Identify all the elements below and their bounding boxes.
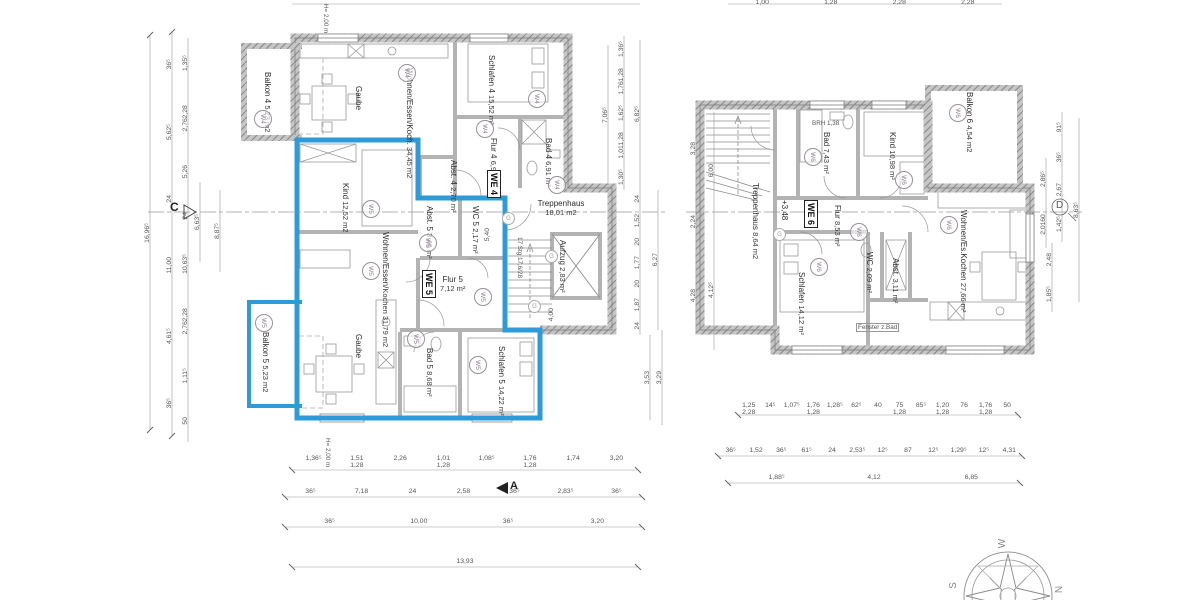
compass-rose-icon [964,552,1052,600]
dim-value: 1,28 [797,0,866,6]
unit-badge-w5: W5 [407,330,425,348]
dim-value: 6,82⁵ [634,106,641,122]
dim-value: 36⁵ [464,518,553,525]
dim-value: 3,29 [656,371,663,384]
dim-col-rp-right-c: 8,63⁵ [1073,118,1080,302]
g-circle: G [773,228,786,241]
unit-badge-w5: W5 [469,356,487,374]
dim-value: 2,762,28 [182,105,189,131]
dim-value: 3,20 [595,455,638,469]
room-label-abst-6: Abst. 3,11 m² [890,258,899,303]
dim-value: 6,27 [652,253,659,266]
unit-badge-w6: W6 [810,258,828,276]
dim-value: 87 [895,447,920,454]
dim-value: 1,42⁵ [1056,216,1063,232]
dim-col-left-short1: 6,63⁵ [194,182,201,262]
dim-value: 3,28 [690,142,697,155]
dim-col-left-mid: 36⁵5,62⁵2411,004,61⁵36⁵ [166,32,173,436]
unit-box-we5: WE 5 [422,270,436,298]
dim-col-rp-right-b: 2,86⁵2,0160 [1040,158,1047,248]
dim-value: 36⁵ [285,518,374,525]
dim-value: 5,26 [182,165,189,178]
dim-value: 36⁵ [1056,152,1063,162]
room-label-balkon-6: Balkon 6 4,54 m2 [964,92,973,152]
room-label-flur-6: Flur 8,53 m² [832,205,841,246]
dim-value: 1,35⁵ [182,55,189,71]
dim-col-rp-right-d: 2,481,85⁵ [1046,243,1053,312]
unit-badge-w6: W6 [949,104,967,122]
dim-value: 61⁵ [794,447,819,454]
room-label-bad-6: Bad 7,43 m² [821,132,830,174]
dim-value: 85⁵ [910,402,932,416]
dim-value: 16,96⁵ [144,223,151,243]
g-circle: G [545,250,558,263]
room-label-abst-4: Abst. 4 2,70 m² [448,160,457,213]
room-label-treppenhaus-right: Treppenhaus 8,64 m2 [750,183,759,259]
dim-value: 1,74 [552,455,595,469]
dim-value: 24 [634,195,641,203]
dim-value: 24 [182,212,189,220]
level-marker: +3,48 [779,200,788,220]
dim-value: 2,53⁵ [845,447,870,454]
dim-value: 5,62⁵ [166,124,173,140]
dim-row-left-bottom-3: 36⁵10,0036⁵3,20 [285,518,642,525]
dim-value: 1,761,28 [975,402,997,416]
dim-value: 1,62⁵ [618,105,625,121]
compass-s-label: S [948,582,959,589]
room-label-schlafen-4: Schlafen 4 15,52 m² [486,55,495,125]
dim-value: 2,86⁵ [1040,171,1047,187]
dim-value: 1,29⁵ [946,447,971,454]
fenster-note: Fenster z.Bad [856,323,899,332]
dim-value: 1,87 [634,298,641,311]
dim-col-left-outer: 16,96⁵ [144,35,151,430]
dim-value: 4,28 [690,289,697,302]
dim-row-left-bottom-1: 1,36⁵1,511,282,261,011,281,08⁵1,761,281,… [292,455,638,469]
dim-value: 1,36⁵ [292,455,335,469]
dim-value: 10,63⁵ [182,254,189,274]
dim-value: 4,12⁵ [708,282,715,298]
unit-badge-w6: W6 [850,223,868,241]
unit-badge-w5: W5 [419,234,437,252]
dim-value: 12⁵ [870,447,895,454]
dim-value: 1,761,28 [803,402,825,416]
unit-badge-w5: W5 [474,288,492,306]
dim-value: 8,87⁵ [214,223,221,239]
dim-value: 1,011,28 [618,132,625,158]
dim-value: 1,77 [634,256,641,269]
dim-col-left-short2: 8,87⁵ [214,190,221,272]
dim-value: 1,00 [728,0,797,6]
room-label-wohnen-5: Wohnen/Essen/Kochen 31,79 m2 [380,232,389,347]
dim-value: 36⁵ [769,447,794,454]
dim-value: 6,85 [923,474,1020,481]
dim-value: 11,00 [166,257,173,274]
dim-col-lp-right-bot: 3,53 [644,335,651,420]
dim-value: 12⁵ [971,447,996,454]
room-label-schlafen-5: Schlafen 5 14,22 m² [496,346,505,416]
dim-value: 24 [387,488,438,495]
dim-value: 4,61⁵ [166,328,173,344]
floorplan-sheet: { "accent": {"blue": "#2e9ad8", "wall_gr… [0,0,1200,600]
dim-value: 7,18 [336,488,387,495]
dim-value: 50 [996,402,1018,416]
dim-col-left-inner: 1,35⁵2,762,285,262410,63⁵2,762,281,11⁵50 [182,38,189,442]
unit-badge-w4: W4 [476,120,494,138]
unit-badge-w6: W6 [895,171,913,189]
room-label-aufzug: Aufzug 2,83 m² [557,240,566,293]
dim-value: 13,93 [292,558,638,565]
dim-row-right-bottom-3: 1,88⁵4,126,85 [728,474,1020,481]
dim-value: 24 [166,195,173,203]
g-circle: G [528,300,541,313]
dim-value: 2,83⁵ [540,488,591,495]
dim-value: 1,28⁵ [824,402,846,416]
dim-value: 8,63⁵ [1073,202,1080,218]
dim-value: 1,201,28 [932,402,954,416]
room-label-bad-5: Bad 5 8,68 m² [424,348,433,397]
unit-badge-w6: W6 [804,148,822,166]
dim-value: 36⁵ [285,488,336,495]
dim-value: 3,53 [644,371,651,384]
dim-value: 6,63⁵ [194,214,201,230]
dim-value: 36⁵ [718,447,743,454]
dim-col-lp-right-b: 6,82⁵ [634,40,641,188]
dim-value: 20 [634,238,641,246]
dim-value: 14⁵ [760,402,782,416]
dim-400: 4,00 [548,298,555,332]
dim-value: 36⁵ [166,59,173,69]
dim-row-left-bottom-2: 36⁵7,18242,5836⁵2,83⁵36⁵ [285,488,642,495]
dim-col-rp-left-inner: 3,282,244,28 [690,112,697,332]
dim-col-lp-right-mid: 241,52201,77201,8724 [634,190,641,335]
room-label-wohnen-6: Wohnen/Es.Kochen 27,66 m² [958,210,967,312]
unit-badge-w4: W4 [398,64,416,82]
dim-value: 7,06⁵ [602,107,609,123]
dim-col-lp-right-bot-outer: 3,29 [656,330,663,425]
compass-w-label: W [997,539,1008,548]
dim-value: 4,12 [825,474,922,481]
dim-value: 2,28 [934,0,1003,6]
room-label-gaube-bottom: Gaube [353,334,362,358]
dim-value: 1,08⁵ [465,455,508,469]
height-note-top: H= 2,00 m [322,4,329,33]
dim-row-right-bottom-1: 1,252,2814⁵1,07⁵1,761,281,28⁵62⁵40751,28… [738,402,1018,416]
unit-badge-w4: W4 [528,90,546,108]
dim-col-lp-right-inner: 1,36⁵1,761,281,62⁵1,011,281,30⁵ [618,36,625,190]
dim-value: 2,24 [690,215,697,228]
dim-value: 1,30⁵ [618,169,625,185]
dim-col-rp-left-outer: 6,004,12⁵ [708,112,715,350]
dim-value: 62⁵ [846,402,868,416]
dim-value: 12⁵ [921,447,946,454]
unit-badge-w4: W4 [548,176,566,194]
room-label-kind-5: Kind 12,52 m2 [340,183,349,233]
dim-col-lp-right-a: 7,06⁵ [602,45,609,185]
stairs-note: 17 Stg 17,6/28 [516,237,523,278]
unit-badge-w4: W4 [254,110,272,128]
dim-value: 2,26 [379,455,422,469]
dim-value: 50 [182,417,189,425]
compass-n-label: N [1054,586,1065,593]
room-label-wc-6: WC 2,09 m² [864,252,873,293]
dim-value: 1,11⁵ [182,368,189,384]
dim-value: 2,67 [1056,183,1063,196]
dim-value: 1,011,28 [422,455,465,469]
room-label-schlafen-6: Schlafen 14,12 m² [796,272,805,335]
dim-value: 36⁵ [166,398,173,408]
dim-col-lp-right-mid-outer: 6,27 [652,190,659,330]
dim-value: 1,88⁵ [728,474,825,481]
brh-note: BRH 1,38 [812,120,839,127]
dim-value: 2,28 [865,0,934,6]
dim-value: 36⁵ [489,488,540,495]
dim-value: 91⁵ [1056,122,1063,132]
dim-value: 10,00 [374,518,463,525]
dim-row-left-bottom-4: 13,93 [292,558,638,565]
dim-value: 24 [819,447,844,454]
dim-value: 2,48 [1046,253,1053,266]
unit-box-we6: WE 6 [804,200,818,228]
dim-col-rp-right-a: 91⁵36⁵2,671,42⁵ [1056,112,1063,242]
dim-value: 1,761,28 [508,455,551,469]
dim-value: 2,762,28 [182,308,189,334]
dim-value: 751,28 [889,402,911,416]
dim-value: 20 [634,280,641,288]
unit-badge-w6: W6 [940,216,958,234]
dim-value: 1,07⁵ [781,402,803,416]
dim-value: 24 [634,322,641,330]
room-label-flur-5: Flur 57,12 m² [440,276,465,294]
dim-value: 1,761,28 [618,68,625,94]
unit-badge-w5: W5 [362,200,380,218]
room-label-treppenhaus-left: Treppenhaus18,01 m2 [522,200,600,218]
dim-value: 1,511,28 [335,455,378,469]
room-label-wohnen-4: Wohnen/Essen/Koch. 34,45 m2 [404,68,413,178]
room-label-wc-5: WC 5 2,17 m² [470,206,479,254]
plan-linework [0,0,1200,600]
dim-value: 4,31 [997,447,1022,454]
dim-row-right-bottom-2: 36⁵1,5236⁵61⁵242,53⁵12⁵8712⁵1,29⁵12⁵4,31 [718,447,1022,454]
dim-value: 3,20 [553,518,642,525]
dim-value: 76 [953,402,975,416]
dim-value: 36⁵ [591,488,642,495]
dim-value: 2,58 [438,488,489,495]
dim-540: 5,40 [484,215,491,255]
dim-row-right-top: 1,001,282,282,28 [728,0,1002,6]
dim-value: 1,52 [634,214,641,227]
room-label-balkon-5: Balkon 5 5,23 m2 [260,332,269,392]
unit-box-we4: WE 4 [487,170,501,198]
room-label-kind-6: Kind 10,98 m² [887,132,896,180]
dim-value: 6,00 [708,164,715,177]
unit-badge-w5: W5 [362,262,380,280]
dim-value: 40 [867,402,889,416]
g-circle: G [502,212,515,225]
dim-value: 2,0160 [1040,214,1047,235]
dim-value: 1,52 [743,447,768,454]
dim-value: 1,252,28 [738,402,760,416]
dim-value: 5,40 [484,228,491,241]
unit-badge-w5: W5 [255,314,273,332]
dim-value: 4,00 [548,308,555,321]
dim-value: 1,36⁵ [618,41,625,57]
room-label-gaube-top: Gaube [353,86,362,110]
dim-value: 1,85⁵ [1046,286,1053,302]
